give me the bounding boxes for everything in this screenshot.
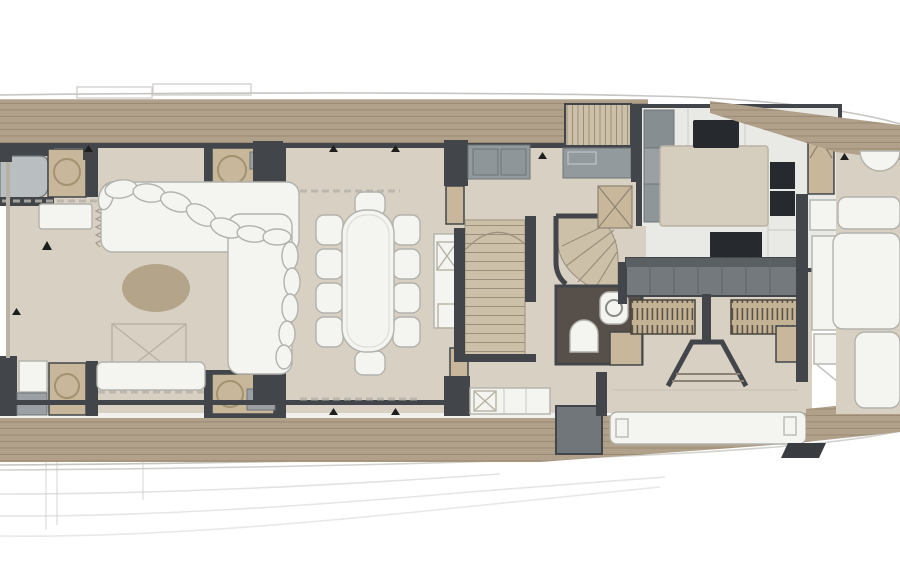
helm-console [626, 258, 798, 296]
yacht-deck-plan: Motor yacht main deck floor plan [0, 0, 900, 564]
sideboard-top [468, 145, 530, 179]
sun-pad-1 [838, 197, 900, 229]
bench-seat [97, 362, 205, 390]
tender-pad [610, 412, 806, 444]
stair-landing [563, 148, 631, 178]
floor-plan-svg: Motor yacht main deck floor plan [0, 0, 900, 564]
entry-cabinet-top [446, 186, 464, 224]
cooktop [693, 120, 739, 148]
side-door-panel-1 [810, 200, 838, 230]
sun-pad-3 [855, 332, 900, 408]
helm-seat-port [631, 300, 695, 334]
deck-locker [556, 406, 602, 454]
oval-rug [122, 264, 190, 312]
galley-sink-1 [770, 162, 795, 189]
galley-sink-2 [770, 191, 795, 216]
dining-table [342, 210, 394, 352]
toilet [570, 320, 598, 352]
dining-area [316, 192, 420, 375]
transom-window-line [6, 162, 10, 358]
head-cabinet [610, 332, 642, 365]
cleat [781, 443, 826, 458]
aft-bar-cabinet-stbd [0, 356, 98, 416]
sun-pad-2 [833, 233, 900, 329]
dumbwaiter [598, 186, 632, 228]
side-table [39, 204, 92, 229]
sideboard-bottom [470, 388, 550, 414]
galley-island [660, 146, 768, 226]
port-side-deck [0, 99, 648, 143]
day-head [556, 286, 642, 365]
staircase-down [454, 216, 536, 362]
